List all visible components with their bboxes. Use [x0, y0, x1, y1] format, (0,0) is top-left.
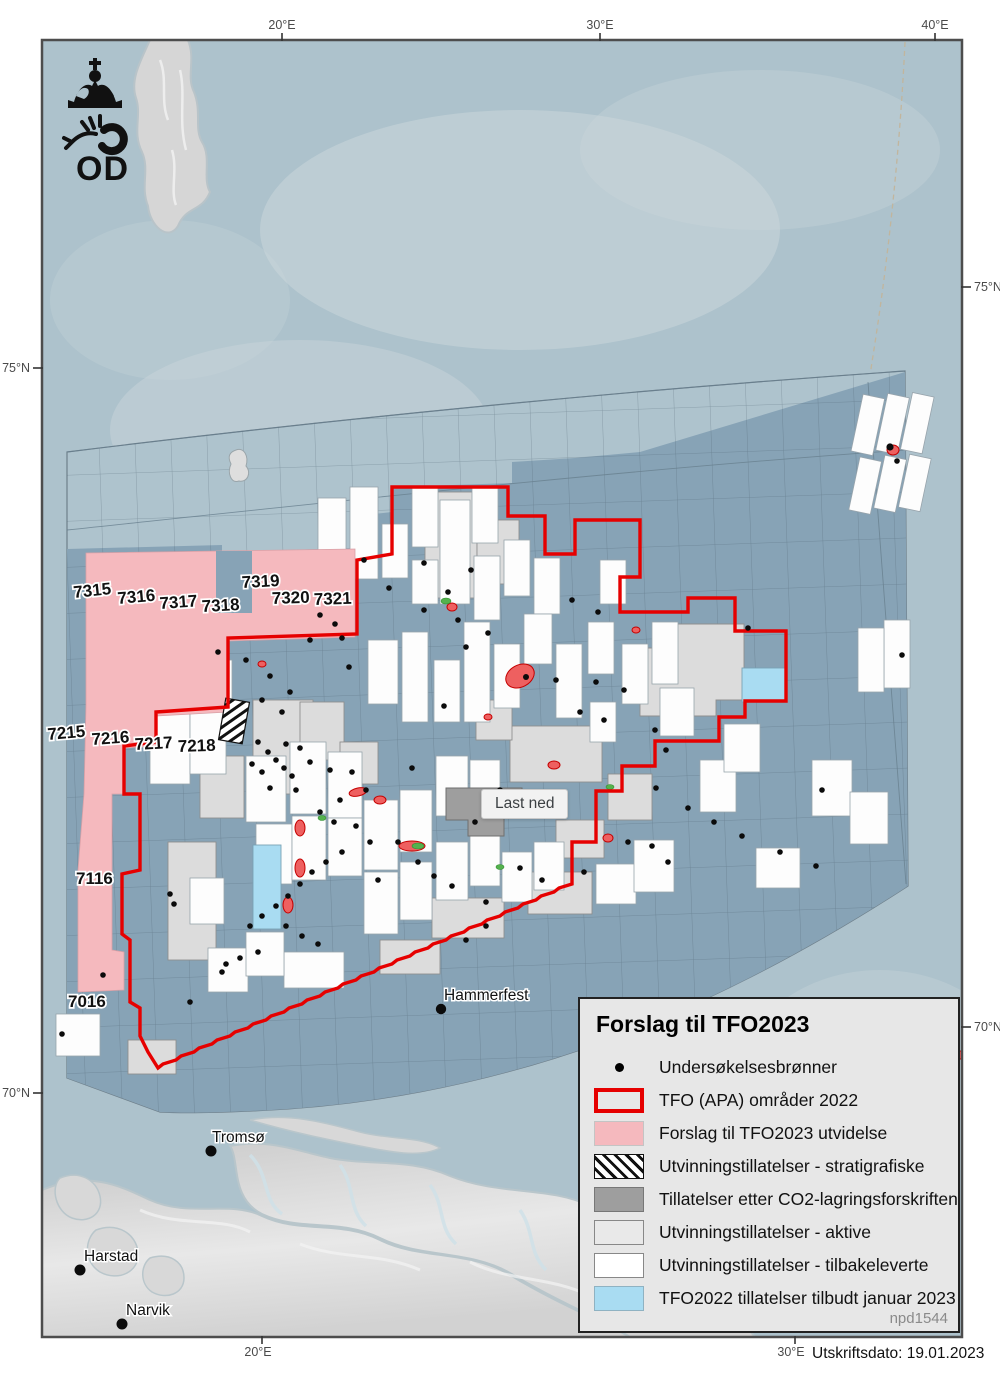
- map-id: npd1544: [890, 1310, 948, 1327]
- quad-label-7317: 7317: [159, 591, 198, 613]
- dark-gray-swatch-icon: [594, 1187, 644, 1212]
- tick-top-40e: 40°E: [921, 18, 948, 32]
- logo-horn-icon: [64, 116, 124, 151]
- legend-label: Utvinningstillatelser - tilbakeleverte: [659, 1255, 928, 1276]
- logo-cross-icon: [89, 61, 101, 65]
- legend-label: Tillatelser etter CO2-lagringsforskrifte…: [659, 1189, 958, 1210]
- quad-label-7320: 7320: [271, 588, 309, 608]
- legend-label: Utvinningstillatelser - aktive: [659, 1222, 871, 1243]
- print-date: Utskriftsdato: 19.01.2023: [812, 1345, 984, 1362]
- legend-row-tfo2022: TFO2022 tillatelser tilbudt januar 2023: [594, 1283, 944, 1313]
- tick-right-75n: 75°N: [974, 280, 1000, 294]
- hatch-swatch-icon: [594, 1154, 644, 1179]
- white-swatch-icon: [594, 1253, 644, 1278]
- legend-row-co2: Tillatelser etter CO2-lagringsforskrifte…: [594, 1184, 944, 1214]
- legend-row-stratigraphic: Utvinningstillatelser - stratigrafiske: [594, 1151, 944, 1181]
- tick-left-75n: 75°N: [2, 361, 30, 375]
- city-label-harstad: Harstad: [84, 1248, 138, 1265]
- city-dot-narvik: [117, 1319, 128, 1330]
- legend-row-returned: Utvinningstillatelser - tilbakeleverte: [594, 1250, 944, 1280]
- legend-row-proposal: Forslag til TFO2023 utvidelse: [594, 1118, 944, 1148]
- download-tooltip-label: Last ned: [495, 795, 554, 812]
- quad-label-7218: 7218: [177, 736, 215, 756]
- city-dot-tromso: [206, 1146, 217, 1157]
- light-gray-swatch-icon: [594, 1220, 644, 1245]
- logo-text: OD: [76, 150, 129, 186]
- map-page: 7315 7316 7317 7318 7319 7320 7321 7215 …: [0, 0, 1000, 1391]
- light-blue-swatch-icon: [594, 1286, 644, 1311]
- quad-label-7315: 7315: [72, 579, 112, 602]
- red-outline-swatch-icon: [594, 1088, 644, 1113]
- city-label-hammerfest: Hammerfest: [444, 987, 529, 1004]
- legend-panel: Forslag til TFO2023 Undersøkelsesbrønner…: [578, 997, 960, 1333]
- legend-label: Utvinningstillatelser - stratigrafiske: [659, 1156, 925, 1177]
- legend-row-tfo-apa: TFO (APA) områder 2022: [594, 1085, 944, 1115]
- quad-label-7321: 7321: [313, 589, 351, 609]
- city-dot-harstad: [75, 1265, 86, 1276]
- tick-left-70n: 70°N: [2, 1086, 30, 1100]
- tick-bottom-30e: 30°E: [777, 1345, 804, 1359]
- download-tooltip: Last ned: [481, 789, 568, 819]
- tick-top-30e: 30°E: [586, 18, 613, 32]
- tick-top-20e: 20°E: [268, 18, 295, 32]
- well-dot-icon: [594, 1055, 644, 1080]
- legend-label: TFO2022 tillatelser tilbudt januar 2023: [659, 1288, 956, 1309]
- legend-label: Undersøkelsesbrønner: [659, 1057, 837, 1078]
- quad-label-7318: 7318: [201, 595, 240, 616]
- city-label-narvik: Narvik: [126, 1302, 170, 1319]
- tick-right-70n: 70°N: [974, 1020, 1000, 1034]
- quad-label-7016: 7016: [68, 992, 106, 1011]
- pink-swatch-icon: [594, 1121, 644, 1146]
- tick-bottom-20e: 20°E: [244, 1345, 271, 1359]
- city-label-tromso: Tromsø: [212, 1129, 265, 1146]
- bjornoya-island: [229, 449, 248, 481]
- quad-label-7316: 7316: [117, 586, 156, 608]
- logo-crown-icon: [68, 80, 122, 108]
- quad-label-7215: 7215: [47, 722, 86, 744]
- legend-title: Forslag til TFO2023: [596, 1011, 944, 1038]
- legend-row-active: Utvinningstillatelser - aktive: [594, 1217, 944, 1247]
- legend-row-wells: Undersøkelsesbrønner: [594, 1052, 944, 1082]
- legend-label: TFO (APA) områder 2022: [659, 1090, 858, 1111]
- city-dot-hammerfest: [436, 1004, 446, 1014]
- quad-label-7116: 7116: [76, 869, 113, 888]
- quad-label-7217: 7217: [134, 733, 173, 754]
- od-logo: OD: [52, 56, 142, 186]
- quad-label-7216: 7216: [91, 727, 130, 749]
- legend-label: Forslag til TFO2023 utvidelse: [659, 1123, 887, 1144]
